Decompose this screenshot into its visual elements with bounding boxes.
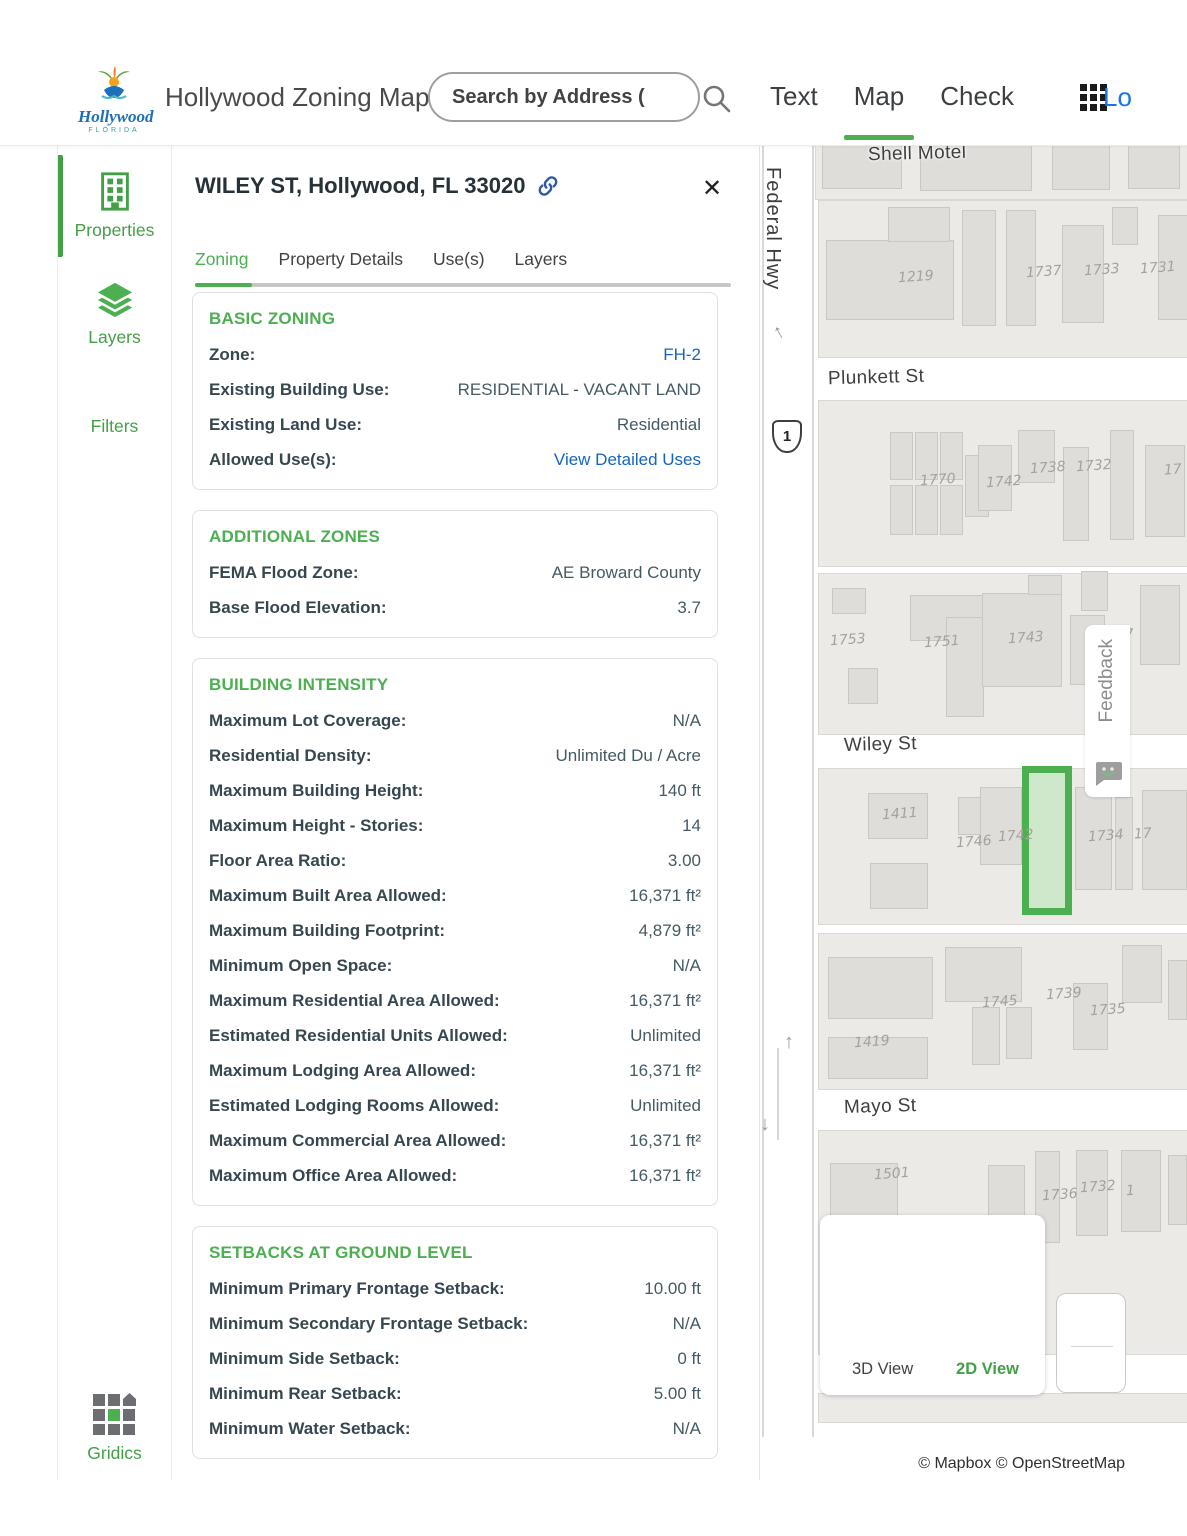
data-row: Estimated Lodging Rooms Allowed:Unlimite… (209, 1088, 701, 1123)
row-label: Minimum Secondary Frontage Setback: (209, 1314, 528, 1334)
row-label: Maximum Lot Coverage: (209, 711, 406, 731)
map-building (832, 588, 866, 614)
row-label: Minimum Primary Frontage Setback: (209, 1279, 505, 1299)
parcel-number-label: 1753 (829, 631, 866, 649)
nav-item-text[interactable]: Text (770, 81, 818, 112)
row-label: Minimum Side Setback: (209, 1349, 400, 1369)
sidebar-item-filters[interactable]: Filters (58, 413, 171, 437)
feedback-label: Feedback (1096, 639, 1118, 722)
nav-item-check[interactable]: Check (940, 81, 1014, 112)
row-value: 0 ft (677, 1349, 701, 1369)
row-value: 16,371 ft² (629, 886, 701, 906)
row-value: 3.7 (677, 598, 701, 618)
parcel-number-label: 1219 (897, 268, 934, 286)
data-row: Minimum Secondary Frontage Setback:N/A (209, 1306, 701, 1341)
parcel-number-label: 1751 (923, 633, 960, 651)
row-value: N/A (673, 1419, 701, 1439)
oneway-arrow-icon: ↓ (760, 1113, 770, 1136)
parcel-number-label: 1736 (1041, 1186, 1078, 1204)
app-header: Hollywood FLORIDA Hollywood Zoning Map T… (0, 0, 1187, 146)
view-2d-button[interactable]: 2D View (956, 1360, 1019, 1379)
row-value: AE Broward County (552, 563, 701, 583)
parcel-number-label: 1745 (981, 993, 1018, 1011)
map-building (1140, 585, 1180, 665)
map-building (946, 617, 984, 717)
row-label: Estimated Residential Units Allowed: (209, 1026, 508, 1046)
app-screen: Hollywood FLORIDA Hollywood Zoning Map T… (0, 0, 1187, 1536)
parcel-number-label: 1734 (1087, 827, 1124, 845)
row-value: 16,371 ft² (629, 1131, 701, 1151)
parcel-number-label: 17 (1163, 461, 1182, 478)
hollywood-turtle-icon (82, 66, 146, 106)
data-row: FEMA Flood Zone:AE Broward County (209, 555, 701, 590)
map-building (1110, 430, 1134, 540)
section-card: BUILDING INTENSITYMaximum Lot Coverage:N… (192, 658, 718, 1206)
data-row: Maximum Residential Area Allowed:16,371 … (209, 983, 701, 1018)
data-row: Maximum Height - Stories:14 (209, 808, 701, 843)
map-building (890, 432, 913, 480)
row-value: N/A (673, 956, 701, 976)
map-building (1006, 1007, 1032, 1059)
street-label-federal-hwy: Federal Hwy (761, 167, 784, 290)
data-row: Zone:FH-2 (209, 337, 701, 372)
top-nav: TextMapCheck (770, 81, 1014, 112)
close-icon[interactable]: ✕ (698, 175, 726, 203)
row-label: Maximum Office Area Allowed: (209, 1166, 457, 1186)
map-building (1168, 1155, 1187, 1225)
sidebar-item-layers[interactable]: Layers (58, 281, 171, 348)
data-row: Minimum Rear Setback:5.00 ft (209, 1376, 701, 1411)
sidebar-item-label: Properties (58, 220, 171, 241)
row-value: 14 (682, 816, 701, 836)
parcel-number-label: 1732 (1075, 457, 1112, 475)
map-building (1145, 445, 1185, 537)
sidebar-item-gridics[interactable]: Gridics (58, 1391, 171, 1464)
map-building (826, 240, 954, 320)
row-label: Maximum Height - Stories: (209, 816, 423, 836)
sidebar-item-label: Layers (58, 327, 171, 348)
map-building (940, 485, 963, 535)
parcel-number-label: 1738 (1029, 459, 1066, 477)
row-label: Residential Density: (209, 746, 372, 766)
map-building (1168, 960, 1187, 1020)
search-input[interactable] (430, 74, 700, 120)
street-label-wiley-st: Wiley St (844, 733, 917, 757)
logo-subtitle: FLORIDA (78, 127, 150, 134)
street-label-mayo-st: Mayo St (844, 1095, 917, 1119)
row-label: Minimum Open Space: (209, 956, 392, 976)
row-value: RESIDENTIAL - VACANT LAND (458, 380, 701, 400)
parcel-number-label: 1501 (873, 1165, 910, 1183)
sidebar-item-label: Gridics (58, 1443, 171, 1464)
section-heading: BUILDING INTENSITY (209, 675, 701, 695)
nav-item-map[interactable]: Map (854, 81, 905, 112)
view-toggle-card: 3D View 2D View (820, 1215, 1045, 1395)
section-heading: ADDITIONAL ZONES (209, 527, 701, 547)
row-label: Maximum Commercial Area Allowed: (209, 1131, 506, 1151)
sidebar-item-label: Filters (58, 416, 171, 437)
share-link-icon[interactable] (535, 173, 561, 199)
row-label: Estimated Lodging Rooms Allowed: (209, 1096, 499, 1116)
feedback-tab[interactable]: Feedback (1085, 625, 1130, 797)
map-building (1115, 797, 1133, 890)
row-label: Floor Area Ratio: (209, 851, 346, 871)
road-edge-line (762, 145, 764, 1437)
row-label: Base Flood Elevation: (209, 598, 387, 618)
property-panel: WILEY ST, Hollywood, FL 33020 ✕ ZoningPr… (170, 145, 760, 1480)
map-block (818, 1393, 1187, 1423)
row-value: Unlimited Du / Acre (556, 746, 702, 766)
map-building (915, 485, 938, 535)
row-value: 3.00 (668, 851, 701, 871)
map-building (972, 1007, 1000, 1065)
oneway-arrow-icon: ↑ (784, 1031, 794, 1054)
row-label: Maximum Residential Area Allowed: (209, 991, 500, 1011)
tab-active-indicator (195, 283, 252, 287)
parcel-number-label: 1 (1125, 1183, 1135, 1200)
data-row: Base Flood Elevation:3.7 (209, 590, 701, 625)
data-row: Maximum Lodging Area Allowed:16,371 ft² (209, 1053, 701, 1088)
map-building (962, 210, 996, 326)
map-building (828, 957, 933, 1019)
property-address-title: WILEY ST, Hollywood, FL 33020 (195, 173, 561, 199)
zoning-sections: BASIC ZONINGZone:FH-2Existing Building U… (192, 292, 718, 1479)
data-row: Estimated Residential Units Allowed:Unli… (209, 1018, 701, 1053)
row-label: Minimum Rear Setback: (209, 1384, 402, 1404)
data-row: Maximum Lot Coverage:N/A (209, 703, 701, 738)
row-label: Zone: (209, 345, 255, 365)
row-value-link[interactable]: View Detailed Uses (554, 450, 701, 470)
row-value: 10.00 ft (644, 1279, 701, 1299)
data-row: Minimum Primary Frontage Setback:10.00 f… (209, 1271, 701, 1306)
feedback-smiley-icon (1093, 759, 1123, 789)
sidebar: PropertiesLayersFiltersGridics (57, 145, 172, 1480)
parcel-number-label: 1743 (1007, 629, 1044, 647)
parcel-number-label: 1742 (985, 473, 1022, 491)
tab-zoning[interactable]: Zoning (195, 249, 249, 270)
data-row: Allowed Use(s):View Detailed Uses (209, 442, 701, 477)
map-canvas[interactable]: Federal HwyShell MotelPlunkett StWiley S… (760, 145, 1187, 1480)
section-heading: SETBACKS AT GROUND LEVEL (209, 1243, 701, 1263)
building-icon (58, 170, 171, 217)
parcel-number-label: 1732 (1079, 1178, 1116, 1196)
hollywood-logo[interactable]: Hollywood FLORIDA (78, 66, 150, 140)
tab-layers[interactable]: Layers (515, 249, 568, 270)
parcel-number-label: 1770 (919, 471, 956, 489)
row-value: 140 ft (658, 781, 701, 801)
map-building (1128, 145, 1180, 189)
tab-use-s-[interactable]: Use(s) (433, 249, 485, 270)
map-building (888, 207, 950, 242)
row-label: Maximum Building Footprint: (209, 921, 445, 941)
search-box[interactable] (428, 72, 700, 122)
logo-wordmark: Hollywood (78, 107, 150, 127)
row-value: Residential (617, 415, 701, 435)
search-icon[interactable] (701, 83, 733, 115)
section-heading: BASIC ZONING (209, 309, 701, 329)
tab-property-details[interactable]: Property Details (279, 249, 404, 270)
parcel-number-label: 1411 (881, 805, 918, 823)
row-label: Allowed Use(s): (209, 450, 337, 470)
sidebar-item-properties[interactable]: Properties (58, 170, 171, 241)
row-value: 16,371 ft² (629, 991, 701, 1011)
road-center-line (777, 1048, 779, 1140)
data-row: Minimum Side Setback:0 ft (209, 1341, 701, 1376)
data-row: Existing Building Use:RESIDENTIAL - VACA… (209, 372, 701, 407)
data-row: Existing Land Use:Residential (209, 407, 701, 442)
map-building (1028, 575, 1062, 595)
section-card: ADDITIONAL ZONESFEMA Flood Zone:AE Browa… (192, 510, 718, 638)
row-value: Unlimited (630, 1026, 701, 1046)
row-value: N/A (673, 1314, 701, 1334)
row-label: Maximum Built Area Allowed: (209, 886, 447, 906)
data-row: Maximum Building Height:140 ft (209, 773, 701, 808)
oneway-arrow-icon: ↑ (769, 320, 789, 345)
view-3d-button[interactable]: 3D View (852, 1360, 913, 1379)
data-row: Floor Area Ratio:3.00 (209, 843, 701, 878)
row-value: 4,879 ft² (639, 921, 701, 941)
map-building (1052, 145, 1110, 190)
parcel-number-label: 1746 (955, 833, 992, 851)
parcel-number-label: 1731 (1139, 259, 1176, 277)
row-label: Maximum Building Height: (209, 781, 423, 801)
data-row: Residential Density:Unlimited Du / Acre (209, 738, 701, 773)
row-value-link[interactable]: FH-2 (663, 345, 701, 365)
map-building (890, 485, 913, 535)
login-link[interactable]: Lo (1103, 82, 1132, 113)
parcel-number-label: 1742 (997, 827, 1034, 845)
section-card: SETBACKS AT GROUND LEVELMinimum Primary … (192, 1226, 718, 1459)
layers-icon (58, 281, 171, 324)
section-card: BASIC ZONINGZone:FH-2Existing Building U… (192, 292, 718, 490)
parcel-number-label: 1733 (1083, 261, 1120, 279)
map-attribution[interactable]: © Mapbox © OpenStreetMap (918, 1455, 1125, 1473)
data-row: Maximum Commercial Area Allowed:16,371 f… (209, 1123, 701, 1158)
map-building (1122, 945, 1162, 1003)
data-row: Maximum Built Area Allowed:16,371 ft² (209, 878, 701, 913)
map-building (848, 668, 878, 704)
row-label: Maximum Lodging Area Allowed: (209, 1061, 476, 1081)
nav-active-underline (844, 135, 915, 140)
row-value: 5.00 ft (654, 1384, 701, 1404)
us-route-1-shield: 1 (772, 420, 802, 453)
row-label: Existing Building Use: (209, 380, 389, 400)
map-building (1112, 207, 1138, 245)
row-label: Minimum Water Setback: (209, 1419, 411, 1439)
panel-tabs: ZoningProperty DetailsUse(s)Layers (195, 249, 567, 270)
property-address-text: WILEY ST, Hollywood, FL 33020 (195, 173, 525, 199)
row-value: 16,371 ft² (629, 1166, 701, 1186)
gridics-logo (58, 1391, 171, 1440)
tab-track (195, 283, 731, 287)
map-building (1081, 571, 1108, 611)
row-label: FEMA Flood Zone: (209, 563, 359, 583)
parcel-number-label: 1739 (1045, 985, 1082, 1003)
data-row: Minimum Water Setback:N/A (209, 1411, 701, 1446)
row-value: 16,371 ft² (629, 1061, 701, 1081)
map-building (1056, 1293, 1126, 1393)
parcel-number-label: 17 (1133, 825, 1152, 842)
row-label: Existing Land Use: (209, 415, 362, 435)
street-label-plunkett-st: Plunkett St (828, 366, 925, 391)
data-row: Maximum Building Footprint:4,879 ft² (209, 913, 701, 948)
data-row: Maximum Office Area Allowed:16,371 ft² (209, 1158, 701, 1193)
parcel-number-label: 1737 (1025, 263, 1062, 281)
map-building (870, 863, 928, 909)
row-value: Unlimited (630, 1096, 701, 1116)
street-label-shell-motel: Shell Motel (868, 145, 967, 166)
page-title: Hollywood Zoning Map (165, 82, 429, 113)
map-building (980, 787, 1022, 865)
row-value: N/A (673, 711, 701, 731)
parcel-number-label: 1419 (853, 1033, 890, 1051)
data-row: Minimum Open Space:N/A (209, 948, 701, 983)
road-edge-line (812, 145, 814, 1437)
parcel-number-label: 1735 (1089, 1001, 1126, 1019)
